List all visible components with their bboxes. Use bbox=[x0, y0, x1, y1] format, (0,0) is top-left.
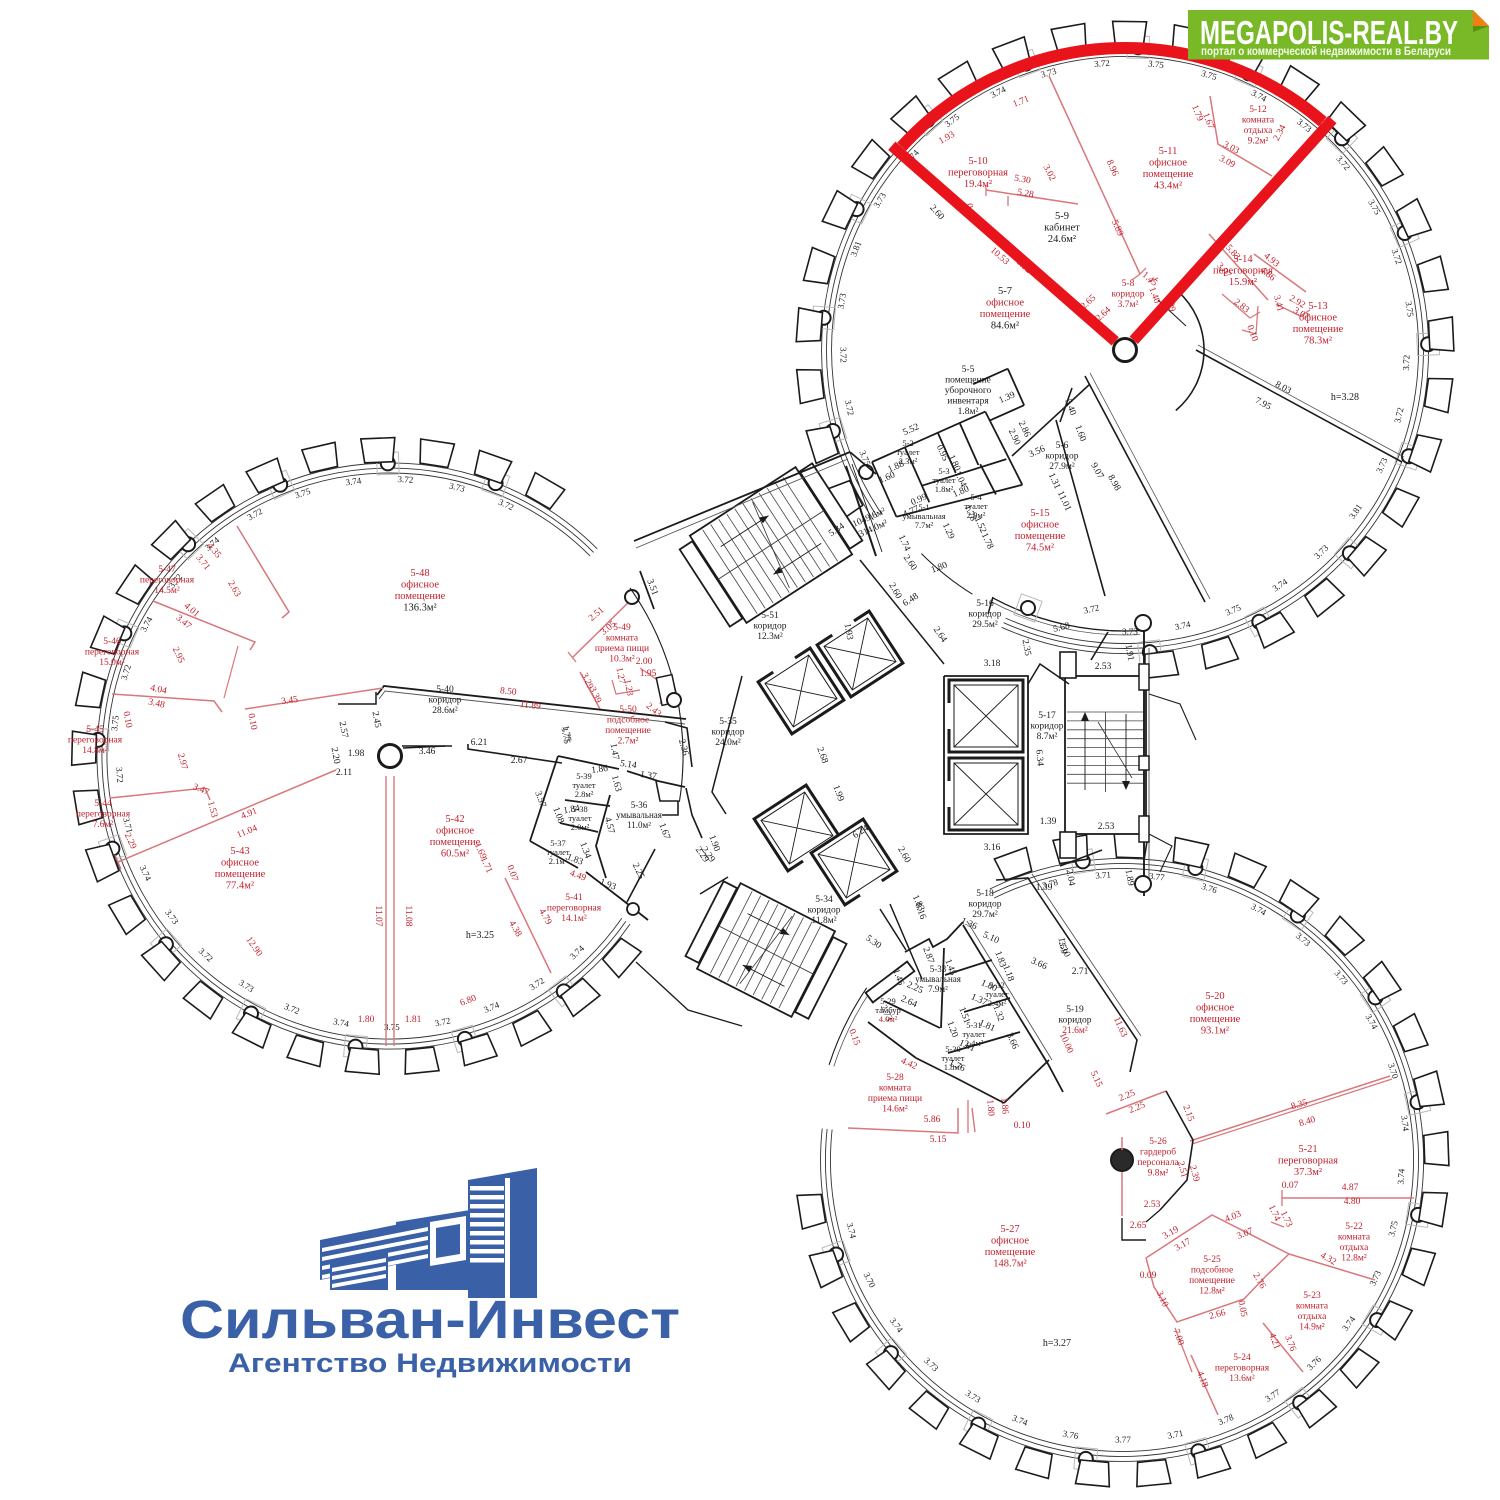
svg-text:6.21: 6.21 bbox=[471, 738, 488, 748]
svg-text:офисное: офисное bbox=[221, 858, 259, 869]
svg-text:1.81: 1.81 bbox=[405, 1015, 422, 1025]
svg-text:1.8м²: 1.8м² bbox=[935, 484, 954, 494]
svg-text:кабинет: кабинет bbox=[1044, 223, 1080, 234]
svg-text:5-45: 5-45 bbox=[86, 725, 104, 735]
svg-text:5-9: 5-9 bbox=[1055, 211, 1069, 222]
svg-text:переговорная: переговорная bbox=[1215, 1364, 1270, 1374]
svg-text:коридор: коридор bbox=[968, 900, 1001, 910]
svg-text:7.9м²: 7.9м² bbox=[928, 984, 948, 994]
svg-text:11.0м²: 11.0м² bbox=[627, 820, 651, 830]
svg-text:12.8м²: 12.8м² bbox=[1341, 1254, 1367, 1264]
svg-text:5-40: 5-40 bbox=[436, 685, 454, 695]
svg-text:2.67: 2.67 bbox=[511, 756, 528, 766]
svg-text:коридор: коридор bbox=[753, 622, 786, 632]
svg-text:78.3м²: 78.3м² bbox=[1304, 336, 1332, 347]
svg-text:комната: комната bbox=[1338, 1233, 1371, 1243]
svg-text:1.98: 1.98 bbox=[348, 749, 365, 759]
svg-text:3.72: 3.72 bbox=[1094, 58, 1111, 69]
svg-text:1.39: 1.39 bbox=[1040, 817, 1057, 827]
svg-text:комната: комната bbox=[879, 1084, 912, 1094]
svg-text:помещение: помещение bbox=[1015, 531, 1066, 542]
svg-text:переговорная: переговорная bbox=[76, 810, 131, 820]
svg-text:3.74: 3.74 bbox=[345, 475, 362, 487]
svg-text:5-18: 5-18 bbox=[976, 889, 994, 899]
svg-text:3.46: 3.46 bbox=[419, 747, 436, 757]
svg-text:148.7м²: 148.7м² bbox=[993, 1259, 1026, 1270]
svg-text:3.74: 3.74 bbox=[1396, 1168, 1407, 1185]
svg-text:приема пищи: приема пищи bbox=[595, 644, 649, 654]
svg-text:коридор: коридор bbox=[1111, 290, 1144, 300]
svg-text:10.3м²: 10.3м² bbox=[609, 655, 635, 665]
svg-text:5-22: 5-22 bbox=[1345, 1222, 1363, 1232]
svg-text:5-50: 5-50 bbox=[619, 705, 637, 715]
svg-text:5-12: 5-12 bbox=[1249, 105, 1267, 115]
svg-text:5-13: 5-13 bbox=[1308, 301, 1327, 312]
svg-text:28.6м²: 28.6м² bbox=[432, 706, 458, 716]
svg-text:переговорная: переговорная bbox=[85, 648, 140, 658]
svg-text:переговорная: переговорная bbox=[948, 168, 1008, 179]
svg-text:0.07: 0.07 bbox=[1282, 1181, 1299, 1191]
svg-text:коридор: коридор bbox=[968, 610, 1001, 620]
svg-text:офисное: офисное bbox=[1149, 158, 1187, 169]
svg-text:11.07: 11.07 bbox=[373, 905, 383, 926]
svg-text:77.4м²: 77.4м² bbox=[226, 881, 254, 892]
svg-text:5-21: 5-21 bbox=[1298, 1144, 1317, 1155]
svg-text:инвентаря: инвентаря bbox=[947, 397, 989, 407]
svg-text:15.9м²: 15.9м² bbox=[1229, 277, 1257, 288]
svg-text:3.18: 3.18 bbox=[984, 659, 1001, 669]
svg-text:офисное: офисное bbox=[401, 580, 439, 591]
svg-text:комната: комната bbox=[1296, 1302, 1329, 1312]
svg-text:1.8м²: 1.8м² bbox=[958, 407, 979, 417]
svg-text:5-28: 5-28 bbox=[886, 1073, 904, 1083]
svg-text:коридор: коридор bbox=[711, 728, 744, 738]
svg-text:офисное: офисное bbox=[986, 298, 1024, 309]
svg-text:отдыха: отдыха bbox=[1244, 126, 1273, 136]
svg-text:h=3.28: h=3.28 bbox=[1331, 392, 1359, 403]
svg-text:2.65: 2.65 bbox=[1130, 1221, 1147, 1231]
svg-text:5-8: 5-8 bbox=[1122, 279, 1135, 289]
svg-text:5-36: 5-36 bbox=[631, 800, 648, 810]
svg-text:136.3м²: 136.3м² bbox=[403, 603, 436, 614]
svg-text:7.7м²: 7.7м² bbox=[915, 520, 934, 530]
svg-text:7.6м²: 7.6м² bbox=[93, 820, 114, 830]
svg-text:14.1м²: 14.1м² bbox=[561, 914, 587, 924]
svg-text:24.6м²: 24.6м² bbox=[1048, 234, 1076, 245]
svg-text:5-43: 5-43 bbox=[230, 846, 249, 857]
svg-text:9.8м²: 9.8м² bbox=[1148, 1169, 1169, 1179]
svg-text:0.10: 0.10 bbox=[1014, 1121, 1031, 1131]
svg-text:подсобное: подсобное bbox=[1191, 1265, 1233, 1276]
svg-text:h=3.25: h=3.25 bbox=[466, 930, 494, 941]
svg-text:2.11: 2.11 bbox=[336, 768, 353, 778]
svg-text:офисное: офисное bbox=[436, 826, 474, 837]
svg-text:помещение: помещение bbox=[1189, 1276, 1235, 1286]
svg-text:3.75: 3.75 bbox=[109, 714, 121, 731]
svg-text:3.72: 3.72 bbox=[397, 474, 413, 485]
svg-text:5-35: 5-35 bbox=[719, 717, 737, 727]
svg-text:5-7: 5-7 bbox=[998, 286, 1012, 297]
svg-text:уборочного: уборочного bbox=[945, 385, 992, 396]
svg-text:h=3.27: h=3.27 bbox=[1043, 1338, 1071, 1349]
svg-text:5-51: 5-51 bbox=[761, 611, 779, 621]
svg-text:переговорная: переговорная bbox=[68, 736, 123, 746]
svg-text:14.6м²: 14.6м² bbox=[882, 1105, 908, 1115]
svg-text:24.0м²: 24.0м² bbox=[715, 738, 741, 748]
svg-text:комната: комната bbox=[1242, 116, 1275, 126]
svg-text:помещение: помещение bbox=[1293, 324, 1344, 335]
svg-text:5-5: 5-5 bbox=[962, 365, 975, 375]
svg-text:11.08: 11.08 bbox=[403, 905, 413, 926]
svg-text:14.8м²: 14.8м² bbox=[82, 746, 108, 756]
svg-text:1.39: 1.39 bbox=[1036, 883, 1053, 893]
svg-text:приема пищи: приема пищи bbox=[868, 1094, 922, 1104]
svg-text:3.72: 3.72 bbox=[114, 767, 125, 783]
svg-text:1.95: 1.95 bbox=[640, 669, 657, 679]
svg-text:3.75: 3.75 bbox=[1148, 58, 1165, 70]
svg-text:5-16: 5-16 bbox=[976, 599, 994, 609]
svg-text:5-17: 5-17 bbox=[1038, 711, 1056, 721]
svg-text:коридор: коридор bbox=[428, 696, 461, 706]
svg-text:5-41: 5-41 bbox=[565, 893, 583, 903]
svg-text:коридор: коридор bbox=[1045, 452, 1078, 462]
svg-text:29.5м²: 29.5м² bbox=[972, 620, 998, 630]
svg-text:1.86: 1.86 bbox=[998, 1097, 1009, 1115]
svg-text:помещение: помещение bbox=[980, 309, 1031, 320]
svg-text:5-20: 5-20 bbox=[1205, 991, 1224, 1002]
svg-text:5-19: 5-19 bbox=[1066, 1005, 1084, 1015]
svg-text:2.53: 2.53 bbox=[1095, 662, 1112, 672]
svg-text:офисное: офисное bbox=[1196, 1003, 1234, 1014]
svg-text:2.00: 2.00 bbox=[636, 657, 653, 667]
svg-text:60.5м²: 60.5м² bbox=[441, 849, 469, 860]
svg-text:5-23: 5-23 bbox=[1303, 1291, 1321, 1301]
svg-text:2.53: 2.53 bbox=[1098, 822, 1115, 832]
svg-text:помещение: помещение bbox=[1143, 169, 1194, 180]
svg-text:коридор: коридор bbox=[1058, 1016, 1091, 1026]
svg-text:27.9м²: 27.9м² bbox=[1049, 462, 1075, 472]
svg-text:8.50: 8.50 bbox=[499, 686, 517, 698]
svg-text:3.16: 3.16 bbox=[984, 843, 1001, 853]
svg-text:персонала: персонала bbox=[1137, 1158, 1179, 1168]
svg-text:3.7м²: 3.7м² bbox=[1118, 300, 1139, 310]
svg-text:5-26: 5-26 bbox=[1149, 1137, 1167, 1147]
svg-text:5-48: 5-48 bbox=[410, 568, 429, 579]
svg-text:3.71: 3.71 bbox=[1095, 870, 1111, 881]
svg-text:помещение: помещение bbox=[605, 726, 651, 736]
svg-text:5-24: 5-24 bbox=[1233, 1353, 1251, 1363]
svg-text:84.6м²: 84.6м² bbox=[991, 321, 1019, 332]
svg-text:2.8м²: 2.8м² bbox=[575, 789, 594, 799]
svg-text:5-42: 5-42 bbox=[445, 814, 464, 825]
svg-text:переговорная: переговорная bbox=[140, 576, 195, 586]
svg-text:6.34: 6.34 bbox=[1033, 749, 1044, 767]
svg-text:13.6м²: 13.6м² bbox=[1229, 1374, 1255, 1384]
svg-text:гардероб: гардероб bbox=[1140, 1147, 1176, 1158]
svg-text:помещение: помещение bbox=[945, 376, 991, 386]
svg-text:5.15: 5.15 bbox=[930, 1135, 947, 1145]
svg-text:отдыха: отдыха bbox=[1340, 1243, 1369, 1253]
svg-text:5-46: 5-46 bbox=[103, 637, 121, 647]
svg-text:5-34: 5-34 bbox=[815, 895, 833, 905]
svg-text:14.9м²: 14.9м² bbox=[1299, 1323, 1325, 1333]
svg-text:3.74: 3.74 bbox=[1399, 1115, 1411, 1132]
svg-text:12.3м²: 12.3м² bbox=[757, 632, 783, 642]
svg-text:переговорная: переговорная bbox=[547, 904, 602, 914]
svg-text:умывальная: умывальная bbox=[616, 810, 662, 820]
svg-text:Сильван-Инвест: Сильван-Инвест bbox=[180, 1290, 680, 1350]
svg-text:офисное: офисное bbox=[1021, 520, 1059, 531]
svg-text:29.7м²: 29.7м² bbox=[972, 910, 998, 920]
svg-text:комната: комната bbox=[606, 634, 639, 644]
svg-text:5-25: 5-25 bbox=[1203, 1255, 1221, 1265]
svg-text:портал о коммерческой недвижим: портал о коммерческой недвижимости в Бел… bbox=[1201, 44, 1451, 58]
svg-text:37.3м²: 37.3м² bbox=[1294, 1167, 1322, 1178]
svg-text:3.72: 3.72 bbox=[1401, 355, 1412, 371]
svg-text:3.72: 3.72 bbox=[838, 347, 848, 363]
svg-text:19.4м²: 19.4м² bbox=[964, 179, 992, 190]
svg-text:5-6: 5-6 bbox=[1056, 441, 1069, 451]
svg-text:подсобное: подсобное bbox=[607, 715, 649, 726]
svg-text:коридор: коридор bbox=[807, 906, 840, 916]
svg-text:5-10: 5-10 bbox=[968, 156, 987, 167]
svg-text:Агентство Недвижимости: Агентство Недвижимости bbox=[228, 1348, 632, 1378]
svg-text:помещение: помещение bbox=[215, 869, 266, 880]
svg-text:9.2м²: 9.2м² bbox=[1248, 137, 1269, 147]
svg-text:8.7м²: 8.7м² bbox=[1037, 732, 1058, 742]
svg-text:3.77: 3.77 bbox=[1115, 1434, 1131, 1444]
svg-text:0.09: 0.09 bbox=[1140, 1271, 1157, 1281]
svg-text:15.0м²: 15.0м² bbox=[99, 658, 125, 668]
svg-text:2.0м²: 2.0м² bbox=[571, 822, 590, 832]
svg-text:5-15: 5-15 bbox=[1030, 508, 1049, 519]
svg-text:43.4м²: 43.4м² bbox=[1154, 181, 1182, 192]
svg-text:4.80: 4.80 bbox=[1344, 1197, 1361, 1207]
svg-text:14.5м²: 14.5м² bbox=[154, 586, 180, 596]
svg-text:5-11: 5-11 bbox=[1159, 146, 1178, 157]
svg-text:коридор: коридор bbox=[1030, 722, 1063, 732]
svg-text:4.87: 4.87 bbox=[1342, 1183, 1359, 1193]
svg-text:офисное: офисное bbox=[991, 1236, 1029, 1247]
svg-text:1.80: 1.80 bbox=[358, 1015, 375, 1025]
svg-text:2.53: 2.53 bbox=[1144, 1200, 1161, 1210]
svg-text:5-44: 5-44 bbox=[94, 799, 112, 809]
svg-text:5.86: 5.86 bbox=[924, 1115, 941, 1125]
svg-text:11.8м²: 11.8м² bbox=[811, 916, 836, 926]
svg-text:5-47: 5-47 bbox=[158, 565, 176, 575]
svg-text:помещение: помещение bbox=[1190, 1014, 1241, 1025]
svg-text:93.1м²: 93.1м² bbox=[1201, 1026, 1229, 1037]
svg-text:74.5м²: 74.5м² bbox=[1026, 543, 1054, 554]
svg-text:5-27: 5-27 bbox=[1000, 1224, 1019, 1235]
svg-text:помещение: помещение bbox=[985, 1247, 1036, 1258]
svg-text:2.7м²: 2.7м² bbox=[618, 737, 639, 747]
svg-text:помещение: помещение bbox=[395, 591, 446, 602]
svg-text:отдыха: отдыха bbox=[1298, 1312, 1327, 1322]
svg-text:2.71: 2.71 bbox=[1072, 967, 1089, 977]
svg-text:переговорная: переговорная bbox=[1278, 1156, 1338, 1167]
svg-text:12.8м²: 12.8м² bbox=[1199, 1287, 1225, 1297]
svg-text:1.80: 1.80 bbox=[984, 1099, 995, 1117]
